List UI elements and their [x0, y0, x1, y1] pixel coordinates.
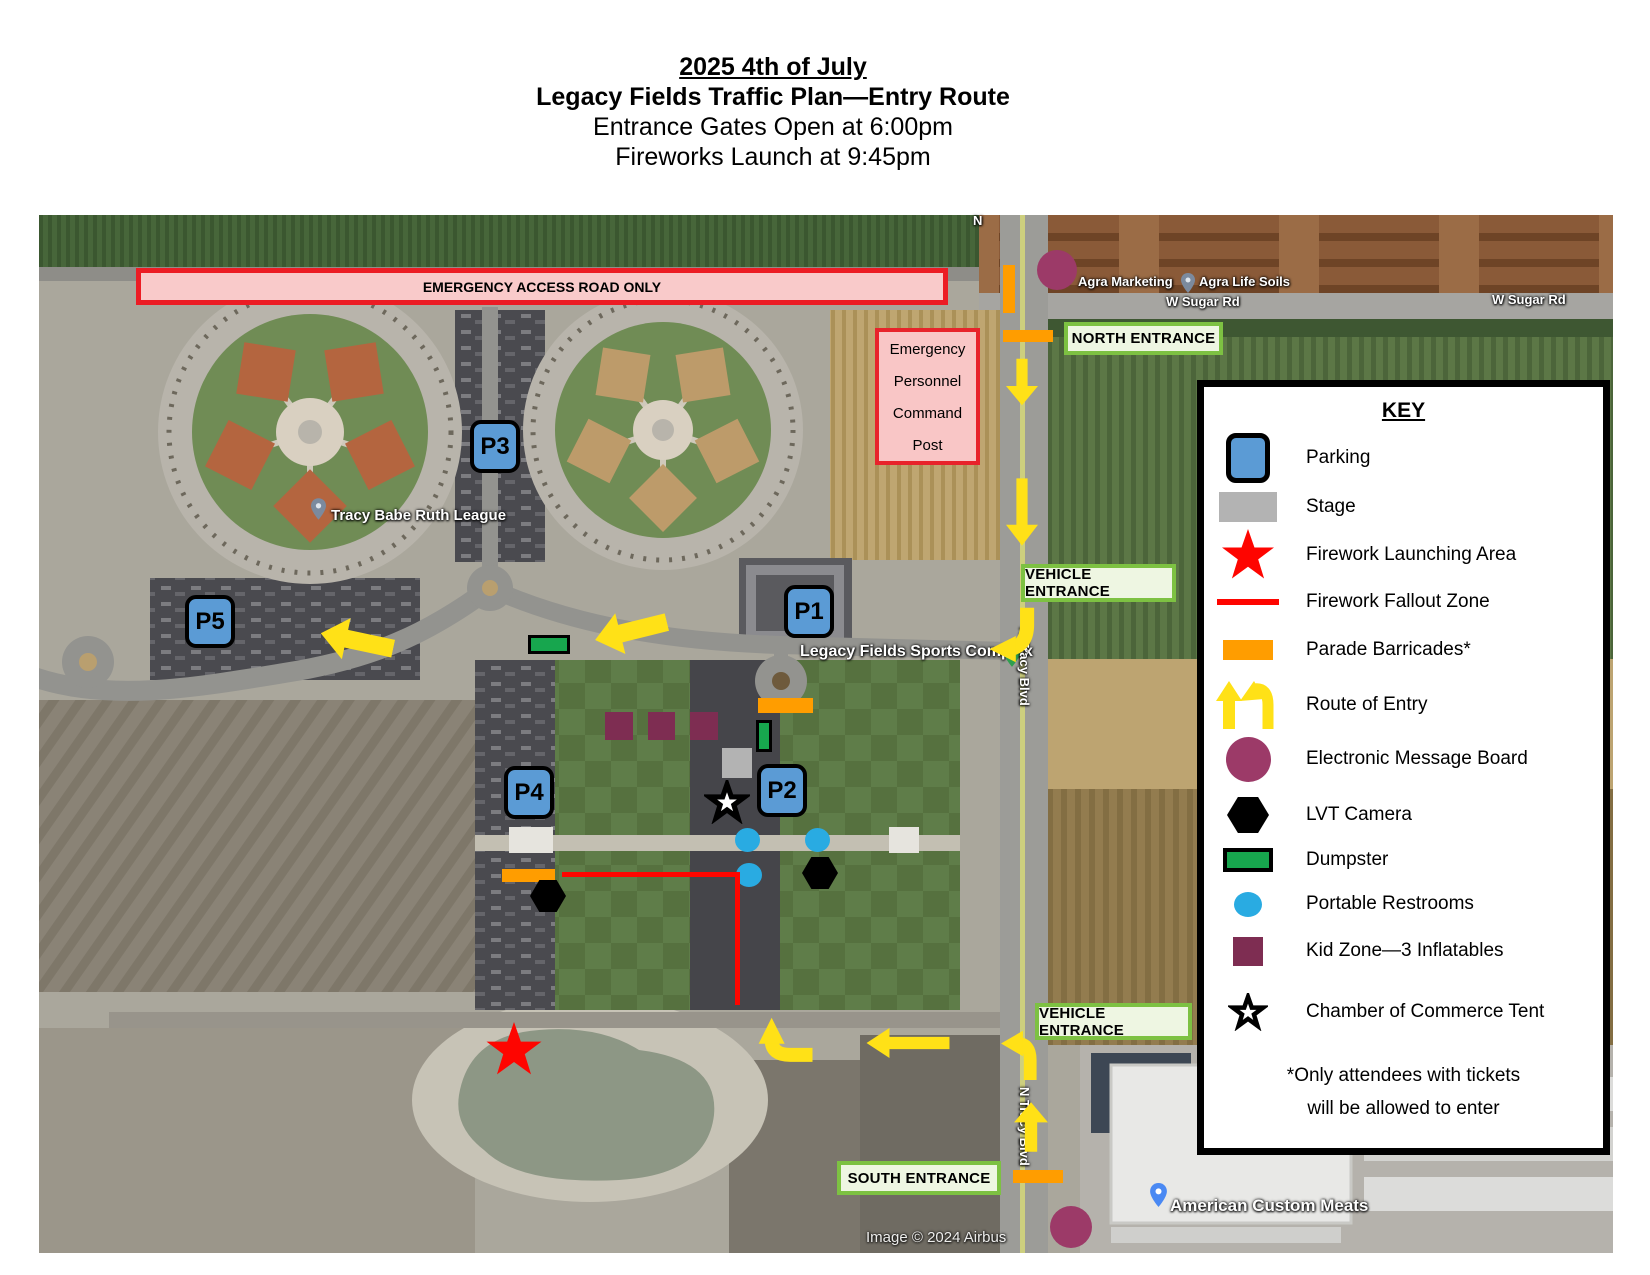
key-row-camera: LVT Camera — [1204, 793, 1603, 837]
stage-icon — [1219, 492, 1277, 522]
page-header: 2025 4th of July Legacy Fields Traffic P… — [348, 52, 1198, 172]
firework-fallout-zone-icon — [1217, 599, 1279, 605]
fallout-zone-line — [735, 872, 740, 1005]
vehicle-entrance-text: VEHICLE ENTRANCE — [1025, 566, 1172, 600]
traffic-plan-flyer: 2025 4th of July Legacy Fields Traffic P… — [0, 0, 1650, 1275]
dumpster-marker — [756, 720, 772, 752]
key-row-fallout: Firework Fallout Zone — [1204, 580, 1603, 624]
route-of-entry-icon — [1216, 679, 1280, 731]
road-label-n: N — [973, 213, 982, 228]
command-post-box: Emergency Personnel Command Post — [875, 328, 980, 465]
message-board-marker — [1050, 1206, 1092, 1248]
american-custom-meats-pin-icon — [1150, 1183, 1167, 1207]
image-credit-label: Image © 2024 Airbus — [866, 1229, 1006, 1246]
tracy-babe-ruth-pin-icon — [311, 498, 326, 520]
american-custom-meats-label: American Custom Meats — [1170, 1196, 1368, 1216]
fallout-zone-line — [562, 872, 738, 877]
key-label: Chamber of Commerce Tent — [1306, 1001, 1544, 1023]
key-row-chamber: Chamber of Commerce Tent — [1204, 990, 1603, 1034]
key-label: Firework Fallout Zone — [1306, 591, 1490, 613]
key-label: Electronic Message Board — [1306, 748, 1528, 770]
key-row-route: Route of Entry — [1204, 678, 1603, 732]
emergency-access-road-banner: EMERGENCY ACCESS ROAD ONLY — [136, 268, 948, 305]
vehicle-entrance-label-south: VEHICLE ENTRANCE — [1035, 1003, 1192, 1040]
p1-text: P1 — [794, 598, 823, 626]
kid-zone-icon — [1233, 937, 1263, 966]
key-row-kid-zone: Kid Zone—3 Inflatables — [1204, 929, 1603, 973]
command-post-line: Personnel — [879, 366, 976, 398]
route-arrow-down — [1006, 476, 1038, 548]
key-row-barricades: Parade Barricades* — [1204, 628, 1603, 672]
gates-open-text: Entrance Gates Open at 6:00pm — [348, 112, 1198, 142]
key-row-parking: Parking — [1204, 436, 1603, 480]
command-post-line: Emergency — [879, 334, 976, 366]
kid-zone-marker — [690, 712, 718, 740]
route-arrow-up — [1014, 1096, 1048, 1158]
key-row-message-board: Electronic Message Board — [1204, 737, 1603, 781]
firework-launch-marker — [485, 1022, 543, 1077]
south-entrance-text: SOUTH ENTRANCE — [848, 1170, 991, 1187]
agra-marketing-label: Agra Marketing — [1078, 274, 1173, 289]
agra-map-pin-icon — [1181, 273, 1195, 293]
command-post-line: Command — [879, 398, 976, 430]
parking-marker-p5: P5 — [185, 595, 235, 648]
command-post-line: Post — [879, 430, 976, 462]
north-entrance-text: NORTH ENTRANCE — [1072, 330, 1216, 347]
key-title: KEY — [1204, 399, 1603, 423]
key-label: Parade Barricades* — [1306, 639, 1471, 661]
kid-zone-marker — [605, 712, 633, 740]
tracy-babe-ruth-label: Tracy Babe Ruth League — [331, 507, 506, 524]
message-board-marker — [1037, 250, 1077, 290]
route-arrow-curve-up — [744, 1014, 816, 1066]
key-label: Dumpster — [1306, 849, 1388, 871]
parking-icon — [1226, 433, 1270, 483]
route-arrow-down — [1006, 356, 1038, 408]
agra-life-soils-label: Agra Life Soils — [1199, 274, 1290, 289]
key-label: Portable Restrooms — [1306, 893, 1474, 915]
barricade-marker — [1003, 265, 1015, 313]
key-row-stage: Stage — [1204, 485, 1603, 529]
parking-marker-p2: P2 — [757, 764, 807, 817]
dumpster-icon — [1223, 848, 1273, 872]
south-entrance-label: SOUTH ENTRANCE — [837, 1161, 1001, 1195]
key-row-restrooms: Portable Restrooms — [1204, 882, 1603, 926]
emergency-access-road-text: EMERGENCY ACCESS ROAD ONLY — [423, 279, 661, 295]
key-note-line2: will be allowed to enter — [1204, 1098, 1603, 1120]
p2-text: P2 — [767, 777, 796, 805]
stage-marker — [722, 748, 752, 778]
route-arrow-left — [866, 1028, 950, 1058]
key-label: Stage — [1306, 496, 1356, 518]
dumpster-marker — [528, 635, 570, 654]
vehicle-entrance-label-mid: VEHICLE ENTRANCE — [1021, 564, 1176, 602]
portable-restrooms-icon — [1234, 892, 1262, 917]
p4-text: P4 — [514, 779, 543, 807]
parking-marker-p1: P1 — [784, 585, 834, 638]
parking-marker-p4: P4 — [504, 766, 554, 819]
barricade-marker — [758, 698, 813, 713]
p5-text: P5 — [195, 608, 224, 636]
key-label: Route of Entry — [1306, 694, 1427, 716]
w-sugar-rd-label-2: W Sugar Rd — [1492, 292, 1566, 307]
restroom-marker — [805, 828, 830, 852]
key-label: LVT Camera — [1306, 804, 1412, 826]
restroom-marker — [735, 828, 760, 852]
key-row-launch: Firework Launching Area — [1204, 533, 1603, 577]
key-note-line1: *Only attendees with tickets — [1204, 1065, 1603, 1087]
key-label: Kid Zone—3 Inflatables — [1306, 940, 1504, 962]
key-row-dumpster: Dumpster — [1204, 838, 1603, 882]
firework-launching-area-icon — [1219, 529, 1277, 581]
satellite-map: N Agra Marketing Agra Life Soils W Sugar… — [39, 215, 1613, 1253]
chamber-tent-marker — [704, 780, 750, 824]
key-label: Firework Launching Area — [1306, 544, 1516, 566]
parade-barricades-icon — [1223, 640, 1273, 660]
electronic-message-board-icon — [1226, 737, 1271, 782]
barricade-marker — [1013, 1170, 1063, 1183]
kid-zone-marker — [648, 712, 675, 740]
north-entrance-label: NORTH ENTRANCE — [1064, 322, 1223, 355]
route-arrow-curve-left — [985, 604, 1041, 666]
parking-marker-p3: P3 — [470, 420, 520, 473]
page-title: 2025 4th of July — [348, 52, 1198, 82]
vehicle-entrance-text: VEHICLE ENTRANCE — [1039, 1005, 1188, 1039]
fireworks-launch-text: Fireworks Launch at 9:45pm — [348, 142, 1198, 172]
lvt-camera-icon — [1227, 797, 1269, 833]
key-legend: KEY Parking Stage Firework Launching Are… — [1197, 380, 1610, 1155]
route-arrow-curve-left — [1000, 1018, 1044, 1080]
w-sugar-rd-label: W Sugar Rd — [1166, 294, 1240, 309]
page-subtitle: Legacy Fields Traffic Plan—Entry Route — [348, 82, 1198, 112]
chamber-tent-icon — [1228, 993, 1268, 1031]
barricade-marker — [1003, 330, 1053, 342]
key-label: Parking — [1306, 447, 1370, 469]
p3-text: P3 — [480, 433, 509, 461]
